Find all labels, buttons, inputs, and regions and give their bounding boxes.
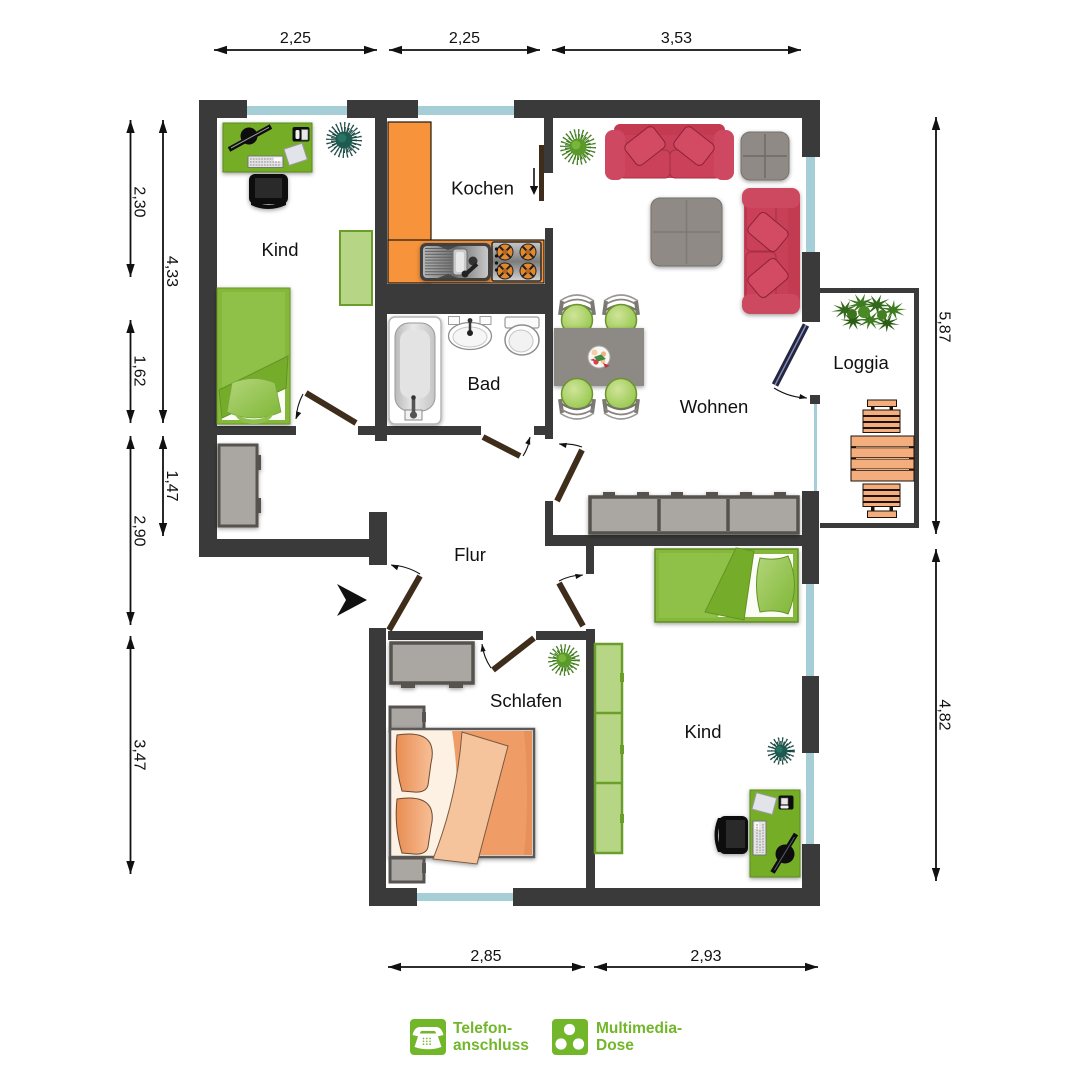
svg-text:2,90: 2,90 (131, 515, 148, 546)
svg-text:2,93: 2,93 (690, 948, 721, 965)
svg-text:Flur: Flur (454, 544, 486, 565)
svg-text:Wohnen: Wohnen (680, 396, 749, 417)
svg-text:Multimedia-: Multimedia- (596, 1020, 682, 1037)
svg-text:1,62: 1,62 (131, 355, 148, 386)
svg-text:Schlafen: Schlafen (490, 690, 562, 711)
svg-text:Bad: Bad (468, 373, 501, 394)
svg-text:4,33: 4,33 (163, 256, 180, 287)
svg-text:Kochen: Kochen (451, 178, 514, 199)
svg-text:3,53: 3,53 (661, 30, 692, 47)
svg-text:Kind: Kind (261, 239, 298, 260)
svg-text:5,87: 5,87 (936, 311, 953, 342)
svg-text:1,47: 1,47 (163, 470, 180, 501)
svg-text:4,82: 4,82 (936, 699, 953, 730)
svg-text:2,30: 2,30 (131, 186, 148, 217)
svg-text:2,25: 2,25 (449, 30, 480, 47)
svg-text:Telefon-: Telefon- (453, 1020, 512, 1037)
svg-text:2,25: 2,25 (280, 30, 311, 47)
svg-text:Dose: Dose (596, 1037, 634, 1054)
svg-text:Kind: Kind (684, 721, 721, 742)
svg-text:2,85: 2,85 (470, 948, 501, 965)
svg-text:3,47: 3,47 (131, 739, 148, 770)
svg-text:anschluss: anschluss (453, 1037, 529, 1054)
svg-text:Loggia: Loggia (833, 352, 889, 373)
